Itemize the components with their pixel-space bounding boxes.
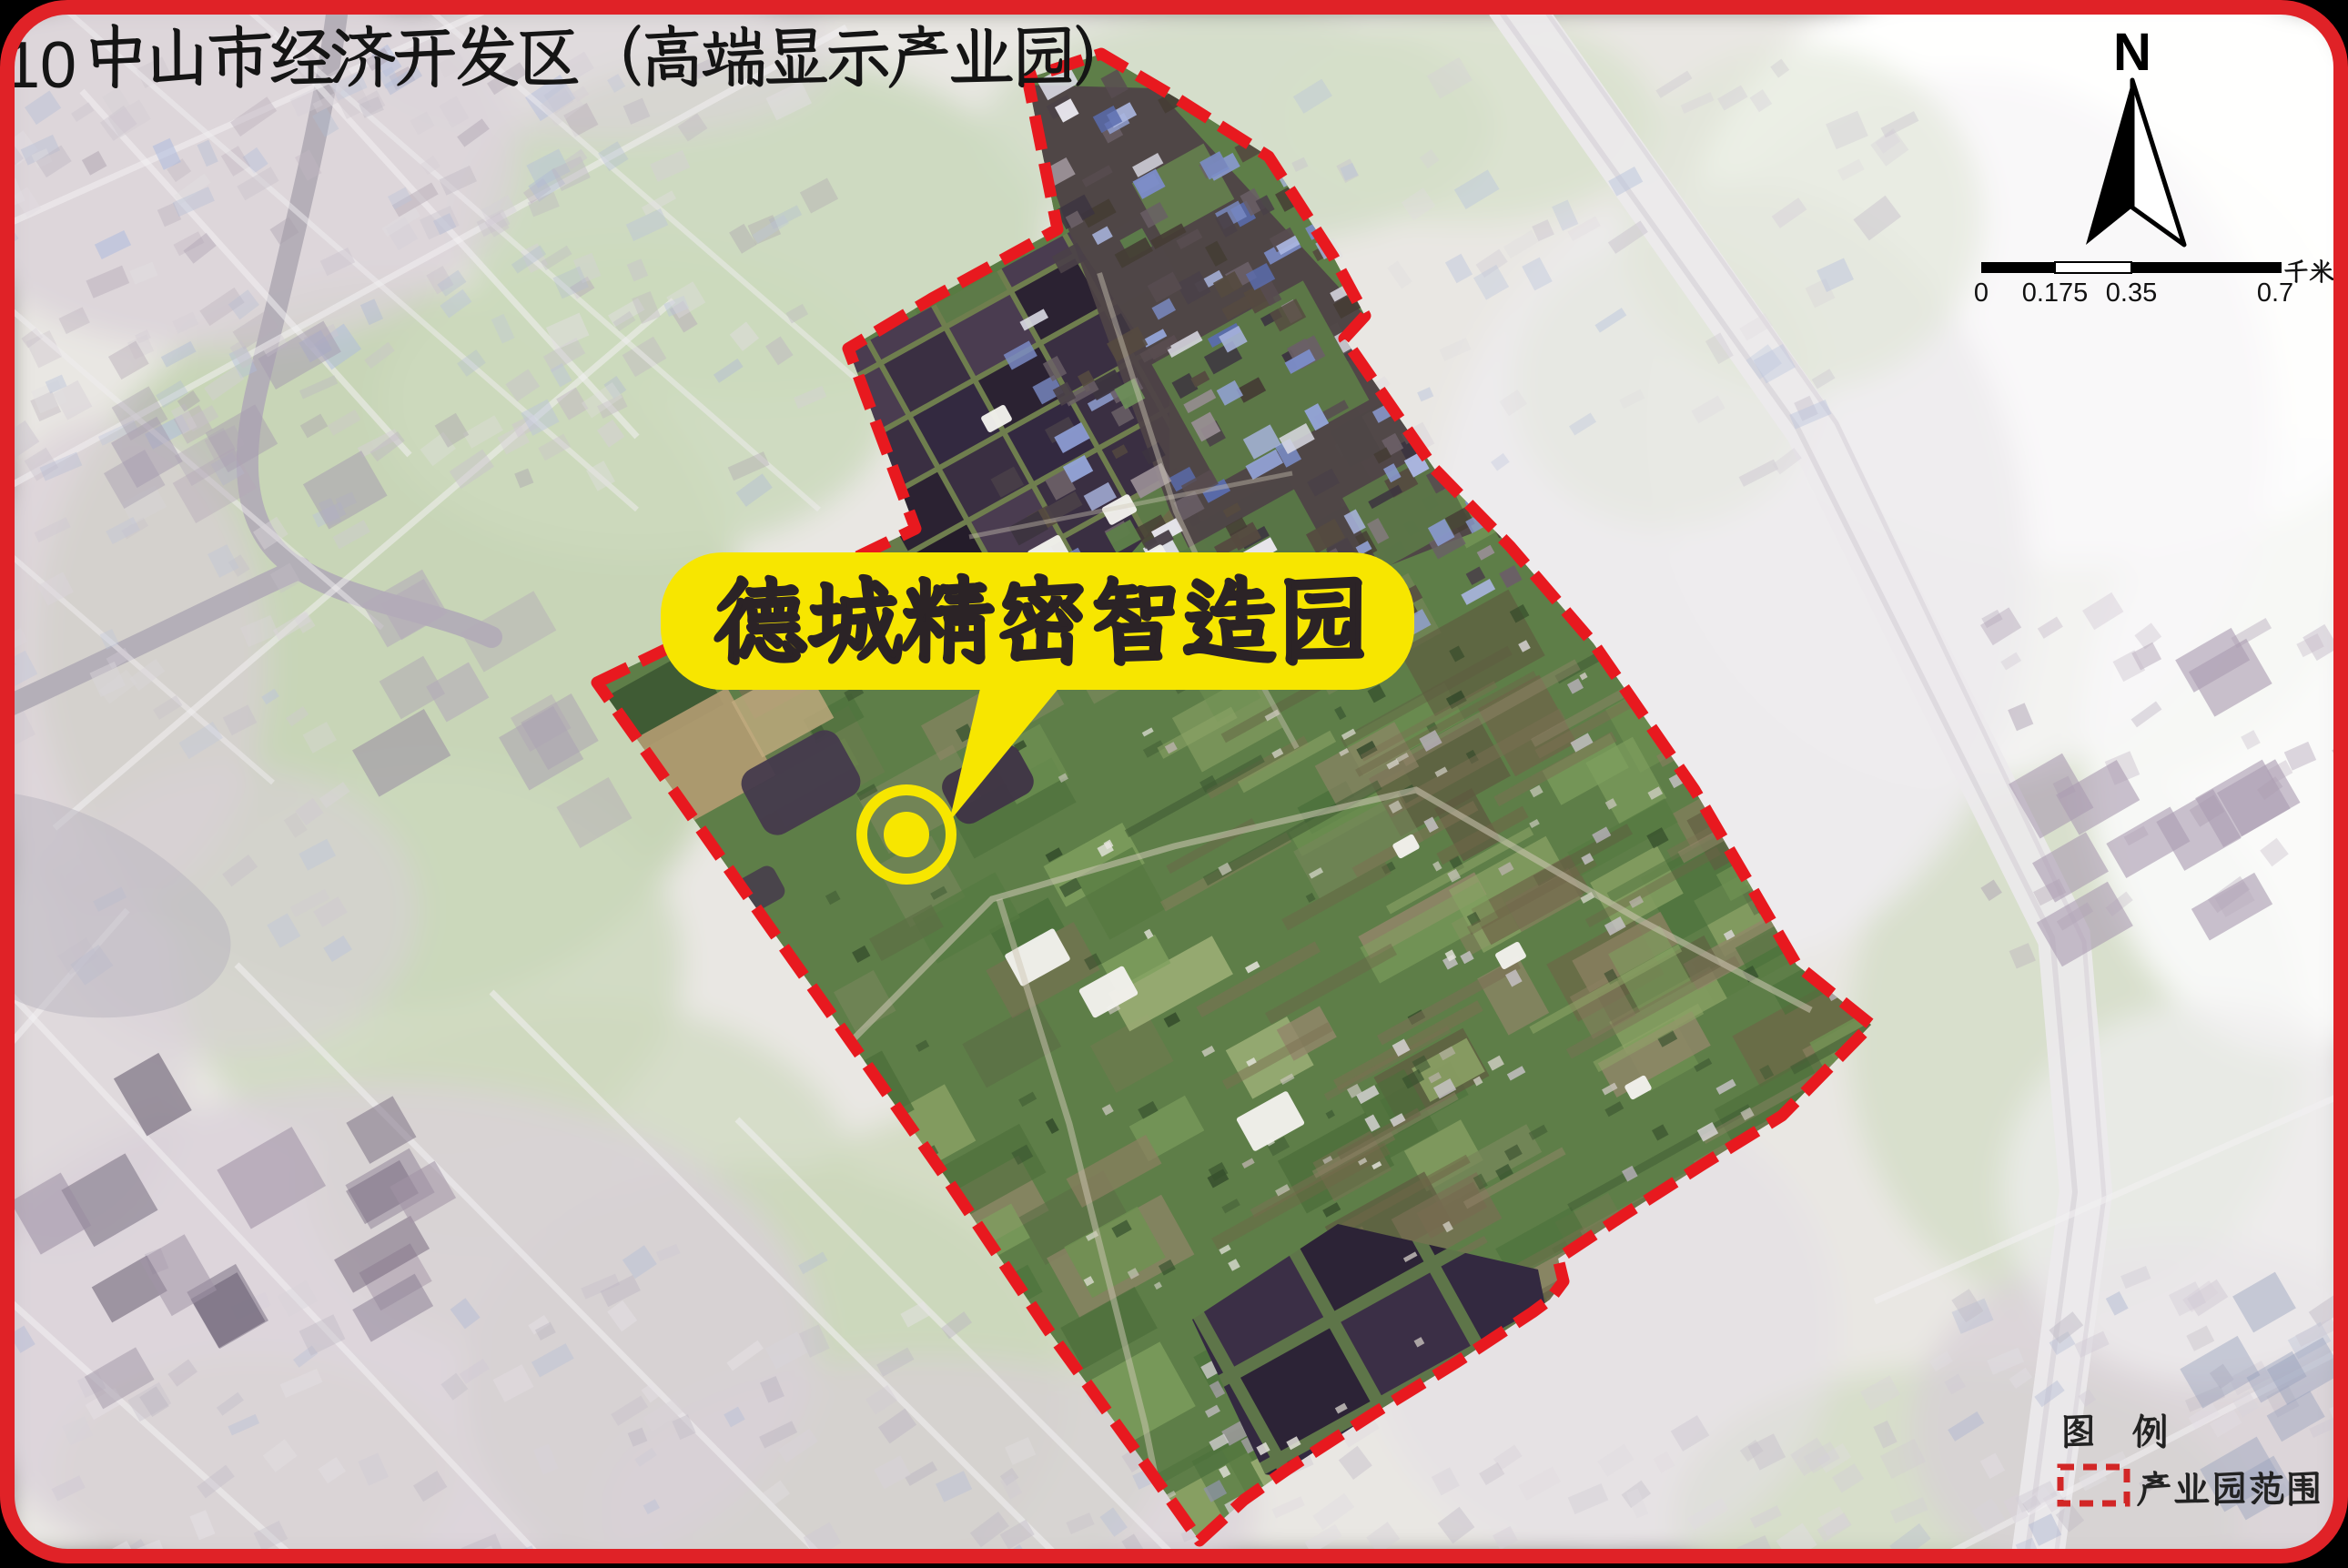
svg-text:0: 0 [1974,278,1989,308]
svg-text:0.175: 0.175 [2022,278,2089,308]
svg-text:N: N [2113,23,2151,82]
svg-text:0.7: 0.7 [2257,278,2293,308]
svg-text:0.35: 0.35 [2106,278,2157,308]
